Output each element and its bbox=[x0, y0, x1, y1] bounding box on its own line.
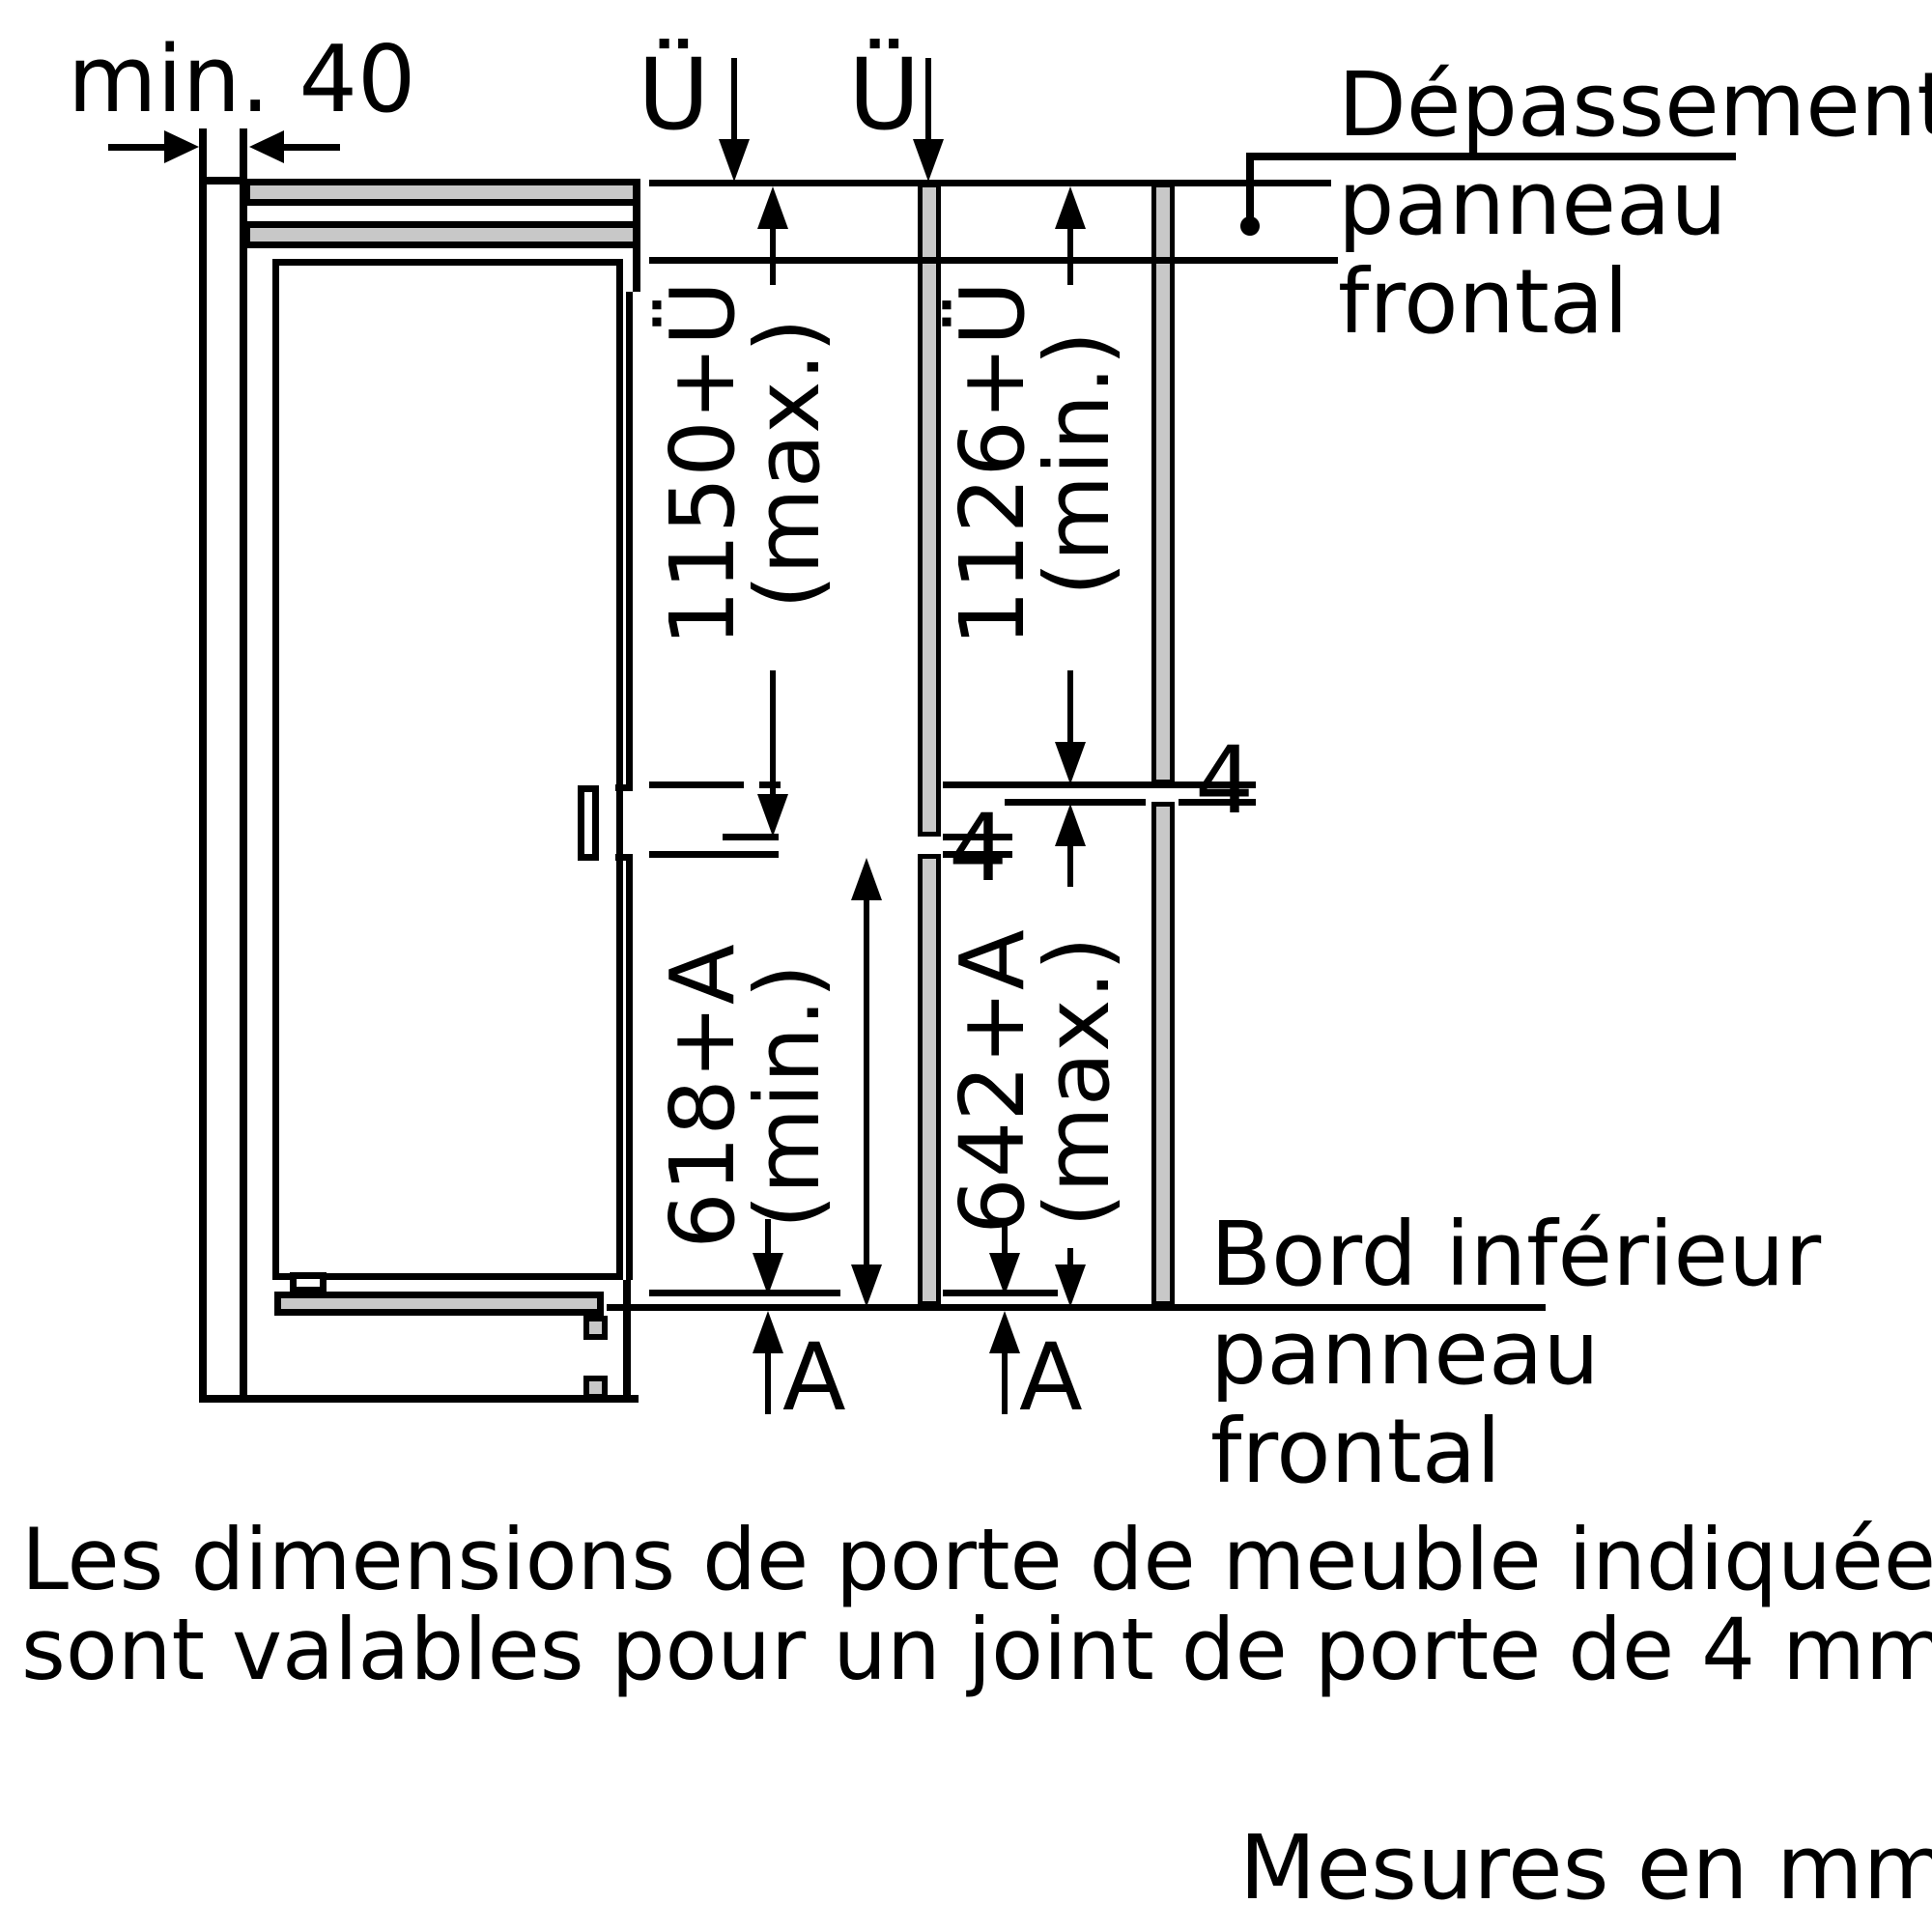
a-gap-label-left: A bbox=[782, 1331, 846, 1424]
appliance-top-reference-line bbox=[649, 257, 1338, 264]
door-liner-lower bbox=[626, 856, 633, 1280]
left-joint-bottom-line bbox=[649, 851, 779, 858]
cabinet-side-line bbox=[240, 128, 247, 1403]
door-liner-upper bbox=[626, 292, 633, 790]
plinth-strip bbox=[274, 1292, 604, 1316]
note-paragraph: Les dimensions de porte de meuble indiqu… bbox=[21, 1515, 1932, 1694]
door-panel-right-upper bbox=[1151, 183, 1175, 784]
arrow-down-icon bbox=[1055, 1264, 1086, 1307]
a-gap-lower-shaft-left bbox=[765, 1349, 771, 1414]
dim-value: 1150+Ü bbox=[661, 281, 746, 647]
arrow-right-icon bbox=[164, 130, 199, 163]
dim-1126-lower-shaft bbox=[1067, 670, 1073, 746]
right-joint-top-line bbox=[649, 781, 744, 788]
joint-gap-label-right: 4 bbox=[1195, 734, 1254, 827]
arrow-up-icon bbox=[989, 1311, 1020, 1353]
callout-line: panneau bbox=[1338, 155, 1932, 253]
hinge-block-upper bbox=[583, 1316, 608, 1340]
callout-dot-icon bbox=[1240, 216, 1260, 236]
dim-value: 1126+Ü bbox=[951, 281, 1036, 647]
dim-1150-lower-shaft bbox=[770, 670, 776, 798]
a-gap-lower-shaft-right bbox=[1002, 1349, 1008, 1414]
overhang-arrow-shaft-1 bbox=[731, 58, 737, 141]
dim-618-label: 618+A (min.) bbox=[659, 894, 833, 1299]
cabinet-top-closure bbox=[199, 177, 247, 185]
door-panel-left-upper bbox=[918, 183, 941, 837]
appliance-bottom-notch bbox=[290, 1272, 327, 1293]
callout-line: Bord inférieur bbox=[1210, 1206, 1821, 1304]
top-panel-strip-2 bbox=[243, 221, 639, 248]
dim-qualifier: (min.) bbox=[1036, 331, 1121, 597]
dim-618-shaft bbox=[864, 895, 869, 1267]
arrow-left-icon bbox=[249, 130, 284, 163]
dim-qualifier: (max.) bbox=[1036, 936, 1121, 1227]
callout-bottom-text: Bord inférieur panneau frontal bbox=[1210, 1206, 1821, 1501]
door-panel-right-lower bbox=[1151, 802, 1175, 1306]
joint-gap-label-left: 4 bbox=[949, 802, 1008, 895]
arrow-down-icon bbox=[1055, 742, 1086, 784]
door-panel-left-lower bbox=[918, 854, 941, 1306]
dim-642-label: 642+A (max.) bbox=[949, 879, 1122, 1285]
cabinet-right-edge-top bbox=[633, 179, 640, 292]
units-label: Mesures en mm bbox=[1239, 1824, 1932, 1913]
installation-diagram-page: { "drawing": { "wall_clearance_label": "… bbox=[0, 0, 1932, 1932]
arrow-down-icon bbox=[719, 139, 750, 182]
panel-top-reference-line bbox=[649, 180, 1331, 186]
panel-bottom-reference-line bbox=[607, 1304, 1546, 1311]
compartment-divider-edge bbox=[578, 785, 599, 861]
top-panel-strip-1 bbox=[243, 179, 639, 206]
dim-value: 642+A bbox=[951, 929, 1036, 1235]
callout-line: panneau bbox=[1210, 1304, 1821, 1403]
callout-top-text: Dépassement panneau frontal bbox=[1338, 56, 1932, 352]
cabinet-bottom-closure bbox=[199, 1395, 639, 1403]
a-gap-upper-shaft-left bbox=[765, 1219, 771, 1258]
min-clearance-left-shaft bbox=[108, 144, 168, 151]
arrow-down-icon bbox=[753, 1253, 783, 1295]
a-gap-label-right: A bbox=[1019, 1331, 1083, 1424]
arrow-up-icon bbox=[753, 1311, 783, 1353]
liner-cap-top bbox=[615, 784, 633, 791]
dim-qualifier: (max.) bbox=[746, 318, 831, 609]
dim-1150-label: 1150+Ü (max.) bbox=[659, 261, 833, 667]
callout-line: frontal bbox=[1210, 1403, 1821, 1501]
note-line-2: sont valables pour un joint de porte de … bbox=[21, 1605, 1932, 1694]
arrow-down-icon bbox=[851, 1264, 882, 1307]
dim-1126-label: 1126+Ü (min.) bbox=[949, 261, 1122, 667]
min-clearance-label: min. 40 bbox=[68, 35, 415, 127]
callout-top-elbow bbox=[1246, 153, 1254, 220]
overhang-label-2: Ü bbox=[848, 46, 921, 145]
dim-qualifier: (min.) bbox=[746, 964, 831, 1230]
a-gap-upper-shaft-right bbox=[1002, 1219, 1008, 1258]
arrow-down-icon bbox=[989, 1253, 1020, 1295]
overhang-label-1: Ü bbox=[638, 46, 710, 145]
dim-value: 618+A bbox=[661, 944, 746, 1249]
min-clearance-right-shaft bbox=[280, 144, 340, 151]
arrow-down-icon bbox=[757, 794, 788, 837]
cabinet-right-edge-bottom bbox=[623, 1280, 631, 1403]
arrow-down-icon bbox=[913, 139, 944, 182]
appliance-body bbox=[272, 259, 623, 1280]
note-line-1: Les dimensions de porte de meuble indiqu… bbox=[21, 1515, 1932, 1605]
wall-line bbox=[199, 128, 207, 1403]
callout-line: frontal bbox=[1338, 253, 1932, 352]
callout-line: Dépassement bbox=[1338, 56, 1932, 155]
liner-cap-bottom bbox=[615, 854, 633, 861]
overhang-arrow-shaft-2 bbox=[925, 58, 931, 141]
